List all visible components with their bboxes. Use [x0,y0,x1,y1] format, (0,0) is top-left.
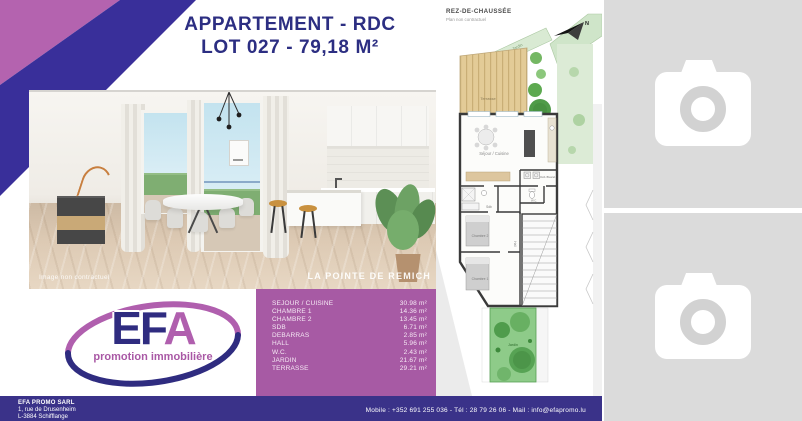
room-label: SEJOUR / CUISINE [272,300,333,308]
pendant-lamp [199,92,259,134]
room-value: 14.36 m² [400,308,427,316]
plan-subtitle: Plan non contractuel [446,17,486,22]
table-row: CHAMBRE 213.45 m² [272,316,427,324]
room-value: 2.85 m² [404,332,427,340]
room-value: 13.45 m² [400,316,427,324]
room-label: TERRASSE [272,365,309,373]
plan-label-chambre2: Chambre 2 [472,234,489,238]
interior-render-image: Image non contractuel LA POINTE DE REMIC… [29,90,441,289]
flyer-page: APPARTEMENT - RDC LOT 027 - 79,18 M² [0,0,802,421]
logo-a: A [164,302,195,354]
room-label: CHAMBRE 1 [272,308,312,316]
room-value: 30.98 m² [400,300,427,308]
photo-placeholder-2[interactable] [604,213,802,421]
room-value: 6.71 m² [404,324,427,332]
dining-chair [167,208,183,228]
kitchen-counter-plan [548,118,556,162]
table-row: HALL5.96 m² [272,340,427,348]
counter-plan [466,172,510,181]
plant-leaf [387,210,419,250]
plan-label-deb: Déb./Buand. [540,175,556,179]
dining-table [163,194,243,210]
dining-chair [145,200,161,220]
footer-company: EFA PROMO SARL [18,400,75,406]
title-line-2: LOT 027 - 79,18 M² [110,36,470,59]
room-value: 5.96 m² [404,340,427,348]
room-label: CHAMBRE 2 [272,316,312,324]
project-name: LA POINTE DE REMICH [308,271,431,281]
wall-picture-frame [229,140,249,166]
logo-wordmark: EFA [58,305,248,351]
street-area [593,104,602,396]
table-row: CHAMBRE 114.36 m² [272,308,427,316]
bar-stool [269,200,287,234]
railing [204,181,260,183]
kitchen-faucet [335,178,337,188]
logo-ef: EF [111,302,163,354]
table-row: DEBARRAS2.85 m² [272,332,427,340]
table-row: SDB6.71 m² [272,324,427,332]
bar-stool [299,205,317,239]
table-row: JARDIN21.67 m² [272,357,427,365]
kitchen-upper-cabinets [327,106,429,148]
render-disclaimer: Image non contractuel [39,274,110,281]
room-label: DEBARRAS [272,332,309,340]
table-row: W.C.2.43 m² [272,349,427,357]
footer-address-line1: 1, rue de Drusenheim [18,407,76,413]
footer-address-line2: L-3884 Schifflange [18,414,68,420]
plan-title: REZ-DE-CHAUSSÉE [446,7,511,15]
island-plan [524,130,535,157]
camera-bump [681,273,717,286]
footer-bar: EFA PROMO SARL 1, rue de Drusenheim L-38… [0,396,602,421]
logo-tagline: promotion immobilière [58,351,248,363]
window [496,112,518,117]
room-value: 29.21 m² [400,365,427,373]
north-label: N [585,21,589,27]
camera-lens [680,86,726,132]
plan-label-hall: Hall [513,241,517,247]
page-title: APPARTEMENT - RDC LOT 027 - 79,18 M² [110,13,470,59]
title-line-1: APPARTEMENT - RDC [110,13,470,36]
plan-label-jardin-bottom: Jardin [508,343,518,347]
camera-lens [680,299,726,345]
efa-logo: EFA promotion immobilière [58,291,248,391]
side-garden [557,44,593,164]
stairs [522,214,557,306]
camera-icon [655,72,751,146]
camera-icon [655,285,751,359]
plan-label-sejour: Séjour / Cuisine [479,151,509,156]
room-label: JARDIN [272,357,297,365]
plan-label-chambre1: Chambre 1 [472,277,489,281]
room-label: HALL [272,340,289,348]
kitchen-backsplash [327,148,429,188]
photo-placeholder-1[interactable] [604,0,802,208]
room-label: SDB [272,324,286,332]
room-areas-table: SEJOUR / CUISINE30.98 m² CHAMBRE 114.36 … [256,289,441,396]
footer-contact: Mobile : +352 691 255 036 - Tél : 28 79 … [366,407,586,414]
floor-plan: Jardin N Terrasse [436,0,602,396]
dining-table-plan [478,129,494,145]
window [468,112,490,117]
table-row: TERRASSE29.21 m² [272,365,427,373]
window [524,112,542,117]
dining-chair [219,208,235,228]
plan-label-sdb: Sdb [486,205,492,209]
plan-label-wc: W.C. [531,199,537,203]
room-label: W.C. [272,349,287,357]
table-row: SEJOUR / CUISINE30.98 m² [272,300,427,308]
room-value: 21.67 m² [400,357,427,365]
room-value: 2.43 m² [404,349,427,357]
hedge [144,173,188,197]
plan-label-terrasse: Terrasse [480,96,496,101]
camera-bump [681,60,717,73]
